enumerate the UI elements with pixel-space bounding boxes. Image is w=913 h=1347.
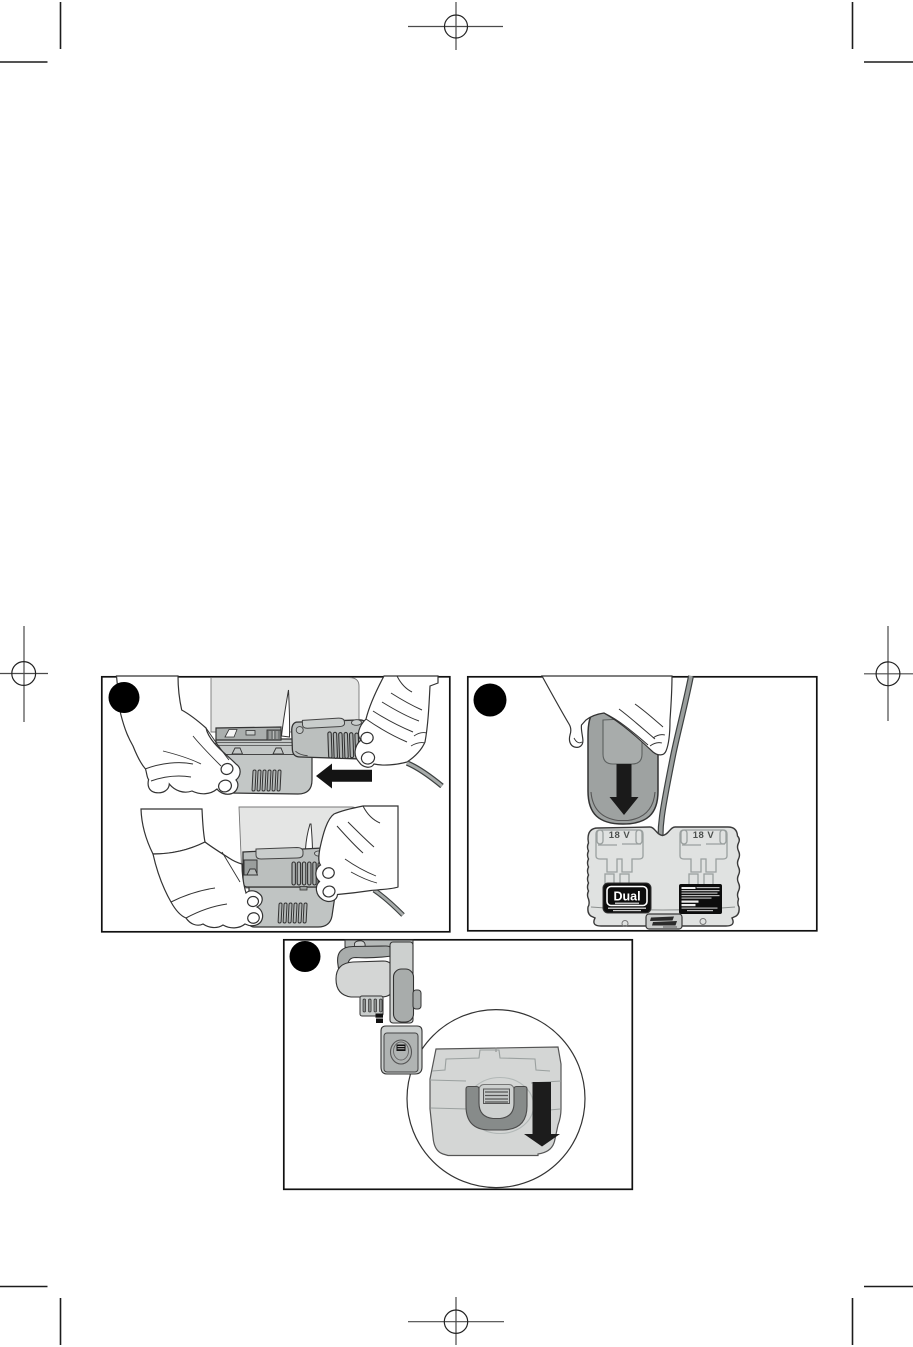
svg-text:18 V: 18 V: [693, 830, 715, 841]
svg-text:18 V: 18 V: [609, 830, 631, 841]
svg-text:Dual: Dual: [613, 890, 640, 904]
